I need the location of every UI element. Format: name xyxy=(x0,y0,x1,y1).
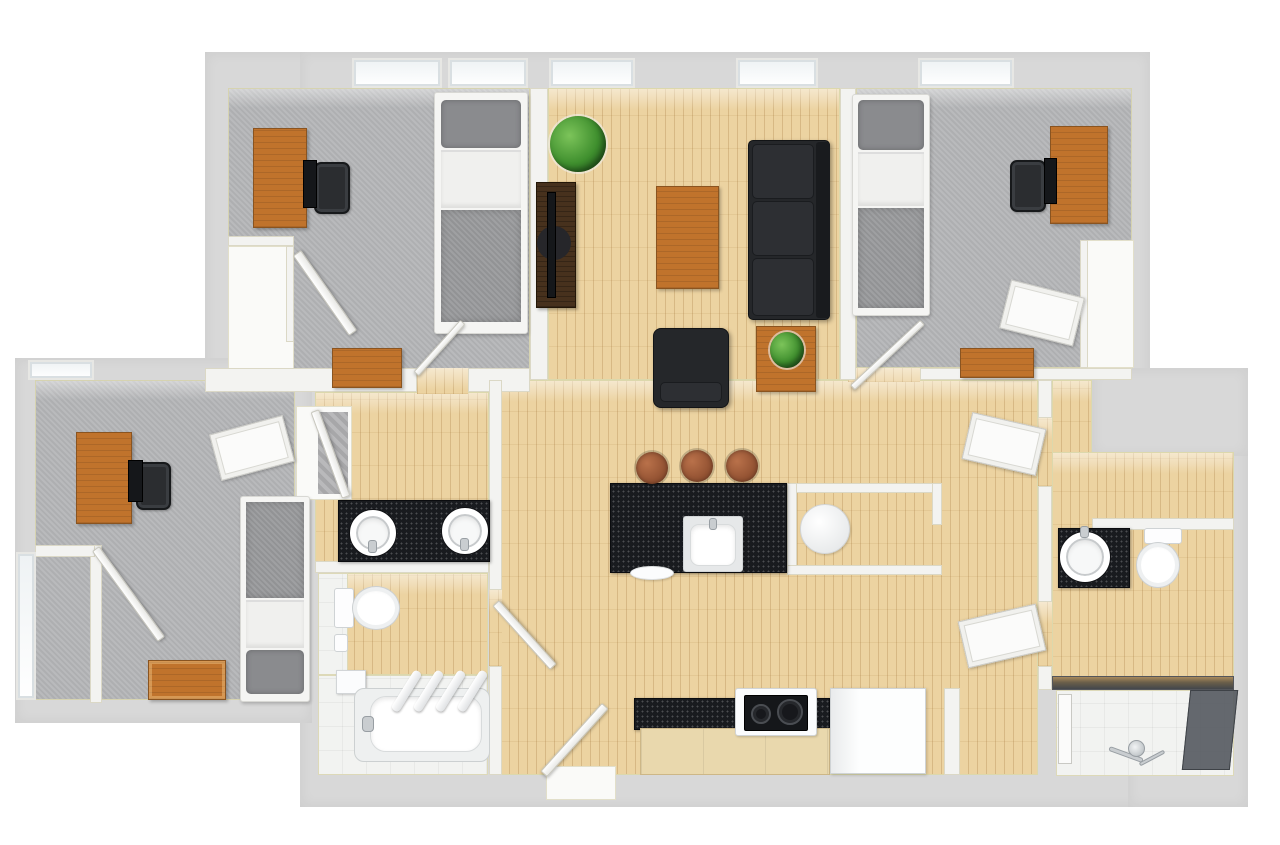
nook-wall-top xyxy=(787,483,942,493)
bathtub-faucet xyxy=(362,716,374,732)
nook-wall-left xyxy=(787,483,797,575)
bath2-faucet xyxy=(1080,526,1089,538)
island-sink-basin xyxy=(690,524,736,566)
nook-round-table xyxy=(800,504,850,554)
bedroom1-dresser xyxy=(332,348,402,388)
bedroom1-window-b xyxy=(448,58,528,88)
toilet1-bowl xyxy=(352,586,400,630)
wall-bedroom1-closet-right xyxy=(286,246,294,342)
living-side-table-plant xyxy=(770,332,804,368)
cooktop-burner-large xyxy=(777,699,803,725)
living-television xyxy=(547,192,556,298)
wing-window-left xyxy=(16,552,36,700)
shower-door xyxy=(1058,694,1072,764)
living-armchair-cushion xyxy=(660,382,722,402)
living-sofa-cushion-1 xyxy=(752,144,814,199)
wall-wing-closet-horizontal xyxy=(35,545,95,557)
wall-bedroom1-closet-top xyxy=(228,236,294,246)
shower-glass-panel xyxy=(1182,690,1238,770)
bedroom2-bed-pillow xyxy=(858,100,924,150)
living-window-b xyxy=(736,58,818,88)
wall-hall-middle xyxy=(1038,486,1052,602)
wall-kitchen-hall-stub xyxy=(944,688,960,775)
island-seat xyxy=(630,566,674,580)
vanity-faucet-left xyxy=(368,540,377,553)
bedroom2-closet-bay xyxy=(1086,240,1134,368)
bedroom1-bed-sheet xyxy=(441,150,521,208)
bath2-sink xyxy=(1060,532,1110,582)
bath2-corridor-floor xyxy=(1052,380,1092,455)
floor-plan xyxy=(0,0,1280,845)
wing-window-top xyxy=(28,360,94,380)
bedroom1-bed-blanket xyxy=(441,210,521,322)
wing-bed-blanket xyxy=(246,502,304,598)
bedroom2-window xyxy=(918,58,1014,88)
wall-bathroom1-right-upper xyxy=(489,380,502,590)
toilet2-bowl xyxy=(1136,542,1180,588)
bar-stool-3 xyxy=(726,450,758,482)
living-window-a xyxy=(549,58,635,88)
wall-vanity-wc xyxy=(315,561,489,573)
bedroom2-dresser xyxy=(960,348,1034,378)
living-sofa-backrest xyxy=(816,142,830,318)
wing-storage-chest xyxy=(148,660,226,700)
bedroom2-monitor xyxy=(1044,158,1057,204)
living-coffee-table xyxy=(656,186,719,289)
wing-bed-sheet xyxy=(246,600,304,648)
bedroom1-window-a xyxy=(352,58,442,88)
toilet1-tank xyxy=(334,588,354,628)
bar-stool-2 xyxy=(681,450,713,482)
cooktop-burner-small xyxy=(751,704,771,724)
bedroom2-bed-blanket xyxy=(858,208,924,308)
exterior-wall-step xyxy=(1092,368,1248,456)
wall-hall-bottom xyxy=(1038,666,1052,690)
bedroom2-office-chair xyxy=(1010,160,1046,212)
living-potted-plant xyxy=(550,116,606,172)
bedroom1-monitor xyxy=(303,160,317,208)
island-faucet xyxy=(709,518,717,530)
bedroom1-bed-pillow xyxy=(441,100,521,148)
shower-glass-divider xyxy=(1052,676,1234,690)
refrigerator xyxy=(830,688,926,774)
nook-wall-bottom xyxy=(787,565,942,575)
bedroom1-office-chair xyxy=(314,162,350,214)
wall-hall-top xyxy=(1038,380,1052,418)
bedroom1-closet-bay xyxy=(228,246,294,380)
wall-bathroom1-right-lower xyxy=(489,666,502,775)
shower-head xyxy=(1128,740,1145,757)
bedroom2-desk xyxy=(1050,126,1108,224)
bedroom1-doorway xyxy=(417,368,468,394)
living-sofa-cushion-3 xyxy=(752,258,814,316)
wing-desk xyxy=(76,432,132,524)
wing-monitor xyxy=(128,460,143,502)
vanity-faucet-right xyxy=(460,538,469,551)
entry-threshold xyxy=(546,766,616,800)
bedroom1-desk xyxy=(253,128,307,228)
wing-bed-pillow xyxy=(246,650,304,694)
living-sofa-cushion-2 xyxy=(752,201,814,256)
toilet2-tank xyxy=(1144,528,1182,544)
wall-wing-closet-vertical xyxy=(90,545,102,703)
bar-stool-1 xyxy=(636,452,668,484)
bedroom2-bed-sheet xyxy=(858,152,924,206)
nook-wall-right xyxy=(932,483,942,525)
toilet1-paper-holder xyxy=(334,634,348,652)
